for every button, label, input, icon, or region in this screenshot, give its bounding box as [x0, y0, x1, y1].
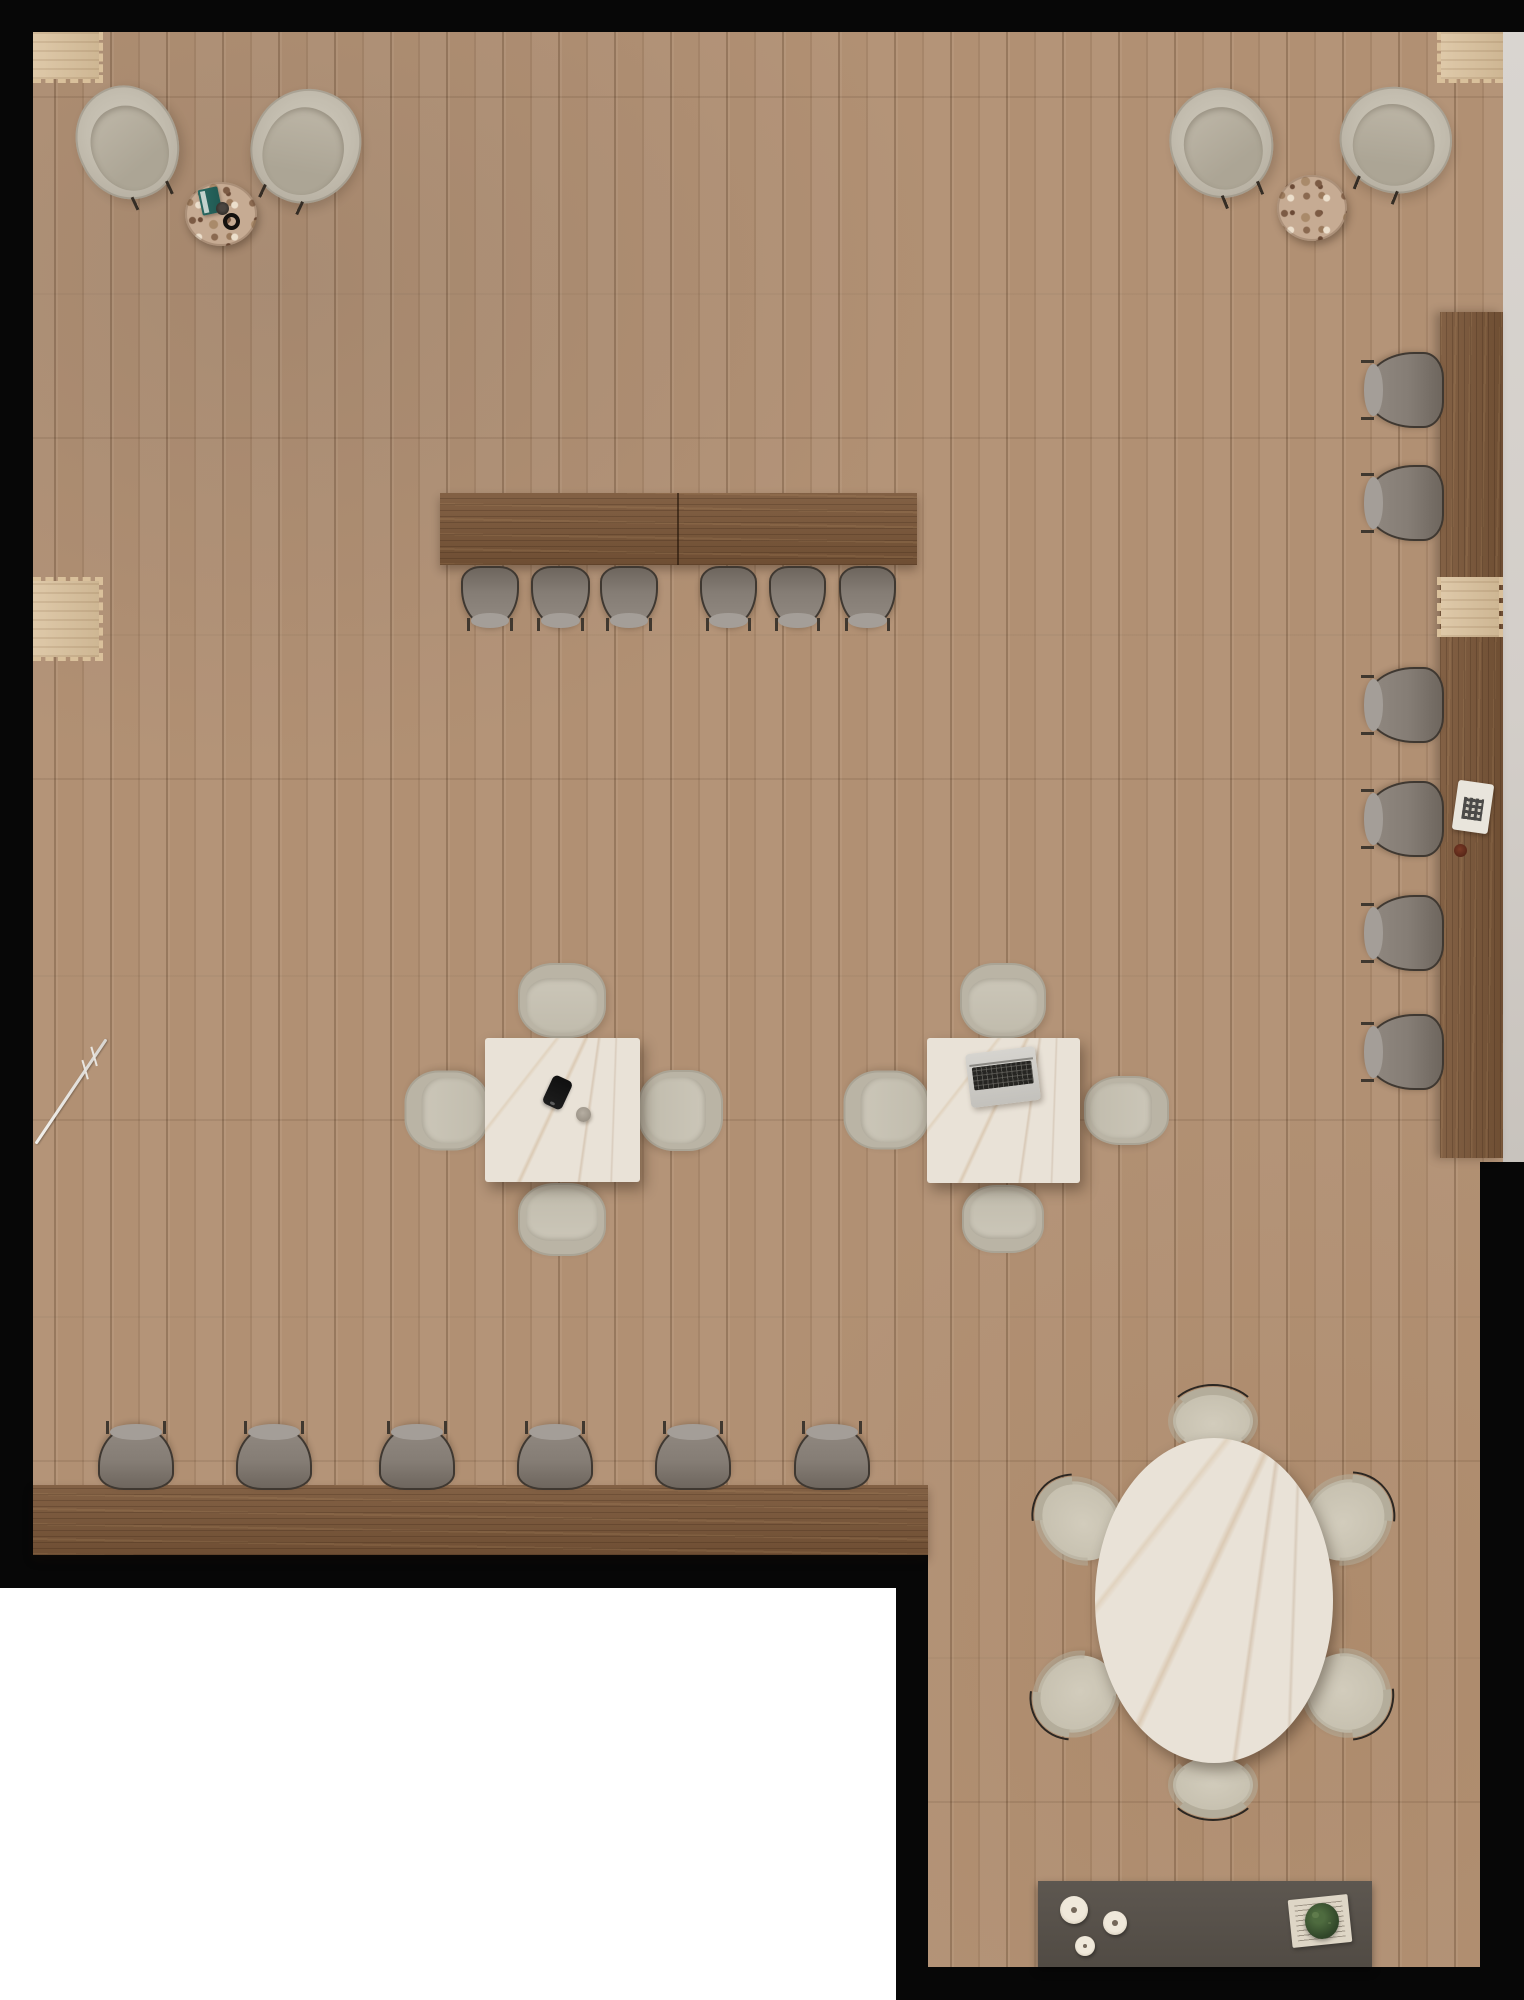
oval-marble-table — [1095, 1438, 1333, 1763]
bar-chair — [1366, 1014, 1444, 1090]
floor-plan-scene — [0, 0, 1524, 2000]
cup — [576, 1107, 591, 1122]
counter-chair — [98, 1426, 174, 1490]
counter-chair — [655, 1426, 731, 1490]
terrazzo-side-table — [1277, 175, 1347, 241]
plate — [1103, 1911, 1127, 1935]
counter-chair — [794, 1426, 870, 1490]
window-counter — [33, 1485, 928, 1555]
dining-chair — [518, 963, 606, 1038]
dining-chair — [960, 963, 1046, 1038]
bar-chair — [1366, 465, 1444, 541]
dining-chair — [844, 1071, 930, 1150]
qr-menu-card — [1452, 780, 1495, 835]
dining-chair — [962, 1185, 1044, 1253]
square-marble-table — [485, 1038, 640, 1182]
laptop — [965, 1046, 1041, 1108]
plate — [1060, 1896, 1088, 1924]
dining-chair — [518, 1183, 606, 1256]
bar-chair — [1366, 781, 1444, 857]
bar-chair — [1366, 352, 1444, 428]
counter-chair — [236, 1426, 312, 1490]
dining-chair — [638, 1070, 723, 1151]
plan-cutout-area — [0, 1588, 896, 2000]
plate — [1075, 1936, 1095, 1956]
counter-chair — [517, 1426, 593, 1490]
dining-chair — [1084, 1076, 1169, 1145]
bar-chair — [1366, 667, 1444, 743]
wall-niche-left — [33, 577, 103, 661]
wall-niche-top-left — [33, 32, 103, 83]
wall-bar-counter — [1440, 312, 1503, 1158]
coaster-ring — [223, 213, 240, 230]
wall-niche-top-right — [1437, 32, 1503, 83]
counter-seam — [677, 493, 679, 565]
bar-pass-through — [1437, 577, 1503, 637]
candle — [1454, 844, 1467, 857]
counter-chair — [379, 1426, 455, 1490]
potted-plant — [1305, 1903, 1339, 1939]
right-wall-ledge — [1503, 32, 1524, 1162]
dining-chair — [405, 1071, 490, 1151]
round-dining-chair — [1173, 1757, 1253, 1813]
bar-chair — [1366, 895, 1444, 971]
